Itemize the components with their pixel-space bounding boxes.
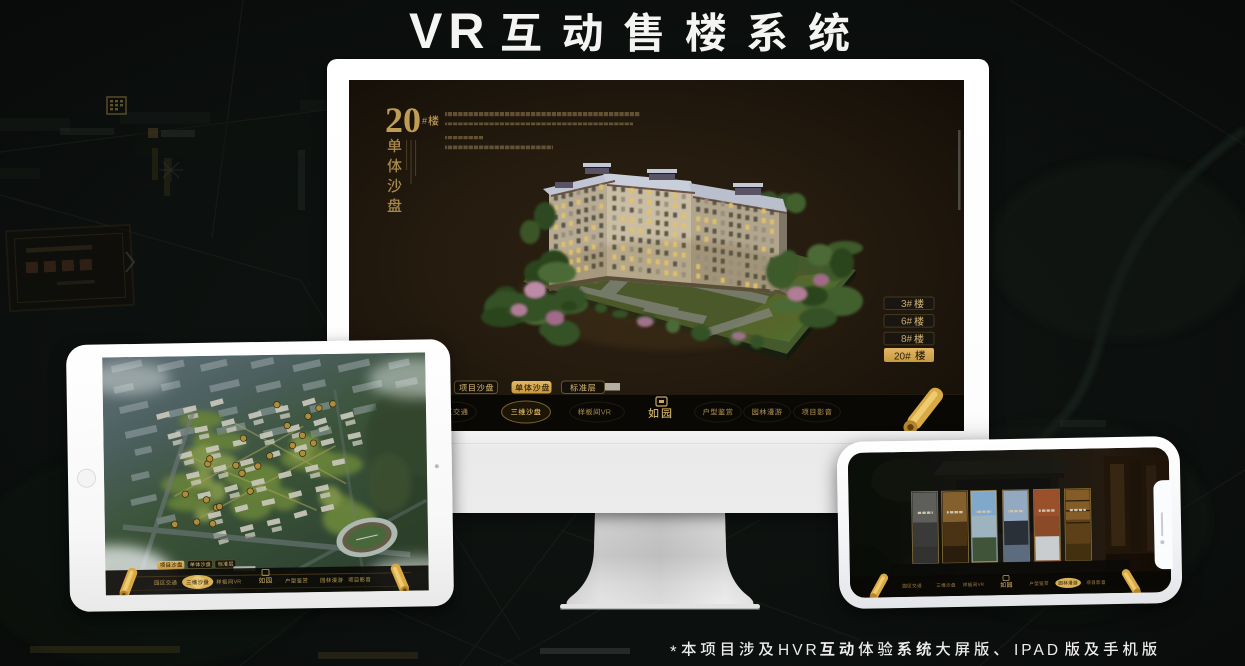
svg-text:20: 20 xyxy=(385,100,421,140)
svg-text:IPAD: IPAD xyxy=(1014,642,1061,659)
svg-text:*: * xyxy=(670,642,677,661)
svg-text:HVR: HVR xyxy=(778,642,820,659)
svg-text:VR: VR xyxy=(409,3,490,59)
svg-text:6#: 6# xyxy=(901,317,913,328)
svg-text:20#: 20# xyxy=(894,352,911,363)
svg-text:R: R xyxy=(237,579,241,585)
svg-text:3#: 3# xyxy=(901,299,913,310)
svg-text:8#: 8# xyxy=(901,334,913,345)
svg-text:#: # xyxy=(422,116,427,126)
svg-text:R: R xyxy=(606,407,611,416)
